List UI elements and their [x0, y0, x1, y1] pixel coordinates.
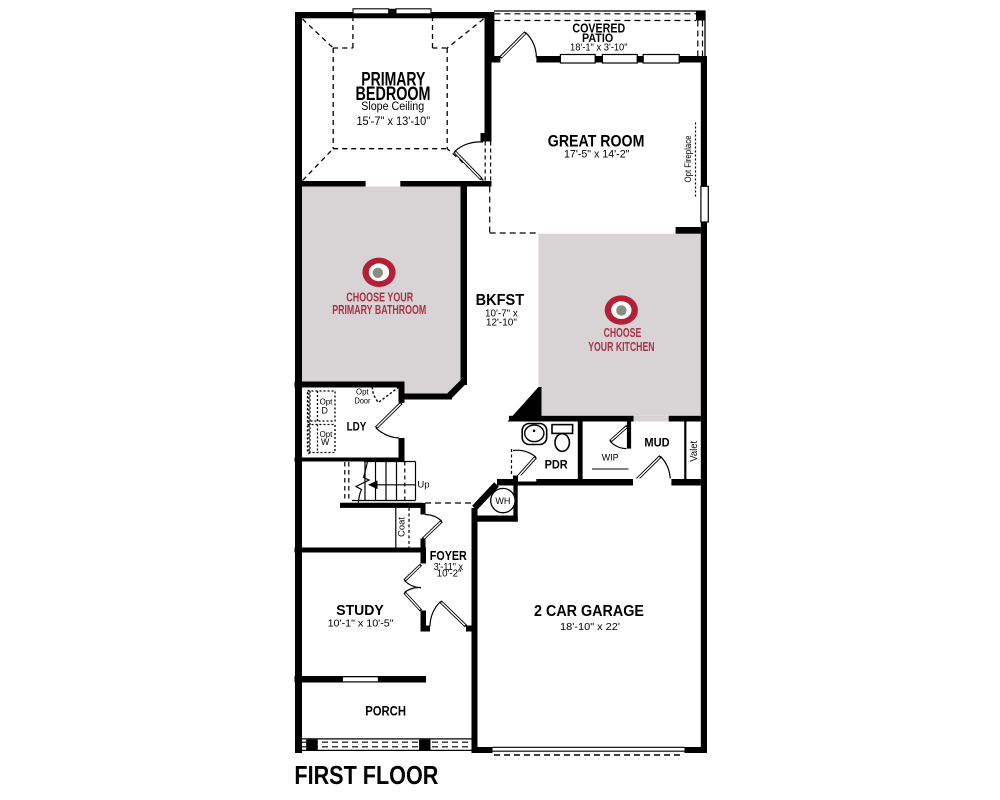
- svg-text:Door: Door: [355, 395, 371, 405]
- svg-text:2 CAR GARAGE: 2 CAR GARAGE: [534, 603, 644, 620]
- svg-text:Slope Ceiling: Slope Ceiling: [361, 101, 424, 113]
- svg-text:WH: WH: [495, 496, 510, 507]
- svg-text:Opt Fireplace: Opt Fireplace: [683, 136, 693, 183]
- svg-text:15'-7" x 13'-10": 15'-7" x 13'-10": [356, 116, 430, 128]
- svg-text:CHOOSE: CHOOSE: [604, 326, 642, 340]
- svg-text:18'-1" x 3'-10": 18'-1" x 3'-10": [570, 42, 628, 53]
- svg-text:FIRST FLOOR: FIRST FLOOR: [294, 760, 438, 790]
- svg-text:FOYER: FOYER: [430, 548, 467, 563]
- svg-text:Up: Up: [417, 480, 429, 491]
- svg-text:D: D: [322, 406, 328, 416]
- svg-text:MUD: MUD: [644, 437, 669, 450]
- svg-text:PDR: PDR: [545, 459, 569, 471]
- svg-text:PORCH: PORCH: [365, 704, 406, 719]
- svg-text:BKFST: BKFST: [476, 292, 525, 309]
- svg-text:W: W: [321, 437, 330, 447]
- svg-text:10'-1" x 10'-5": 10'-1" x 10'-5": [328, 617, 394, 629]
- svg-text:LDY: LDY: [347, 420, 367, 434]
- svg-text:18'-10" x 22': 18'-10" x 22': [560, 621, 620, 633]
- svg-text:12'-10": 12'-10": [486, 317, 517, 328]
- svg-text:WIP: WIP: [602, 452, 619, 463]
- svg-text:10'-2": 10'-2": [437, 569, 462, 580]
- svg-text:PRIMARY BATHROOM: PRIMARY BATHROOM: [332, 302, 426, 317]
- svg-text:Coat: Coat: [397, 517, 408, 537]
- svg-text:YOUR KITCHEN: YOUR KITCHEN: [588, 340, 654, 354]
- svg-text:Valet: Valet: [689, 441, 700, 462]
- svg-text:17'-5" x 14'-2": 17'-5" x 14'-2": [564, 148, 629, 160]
